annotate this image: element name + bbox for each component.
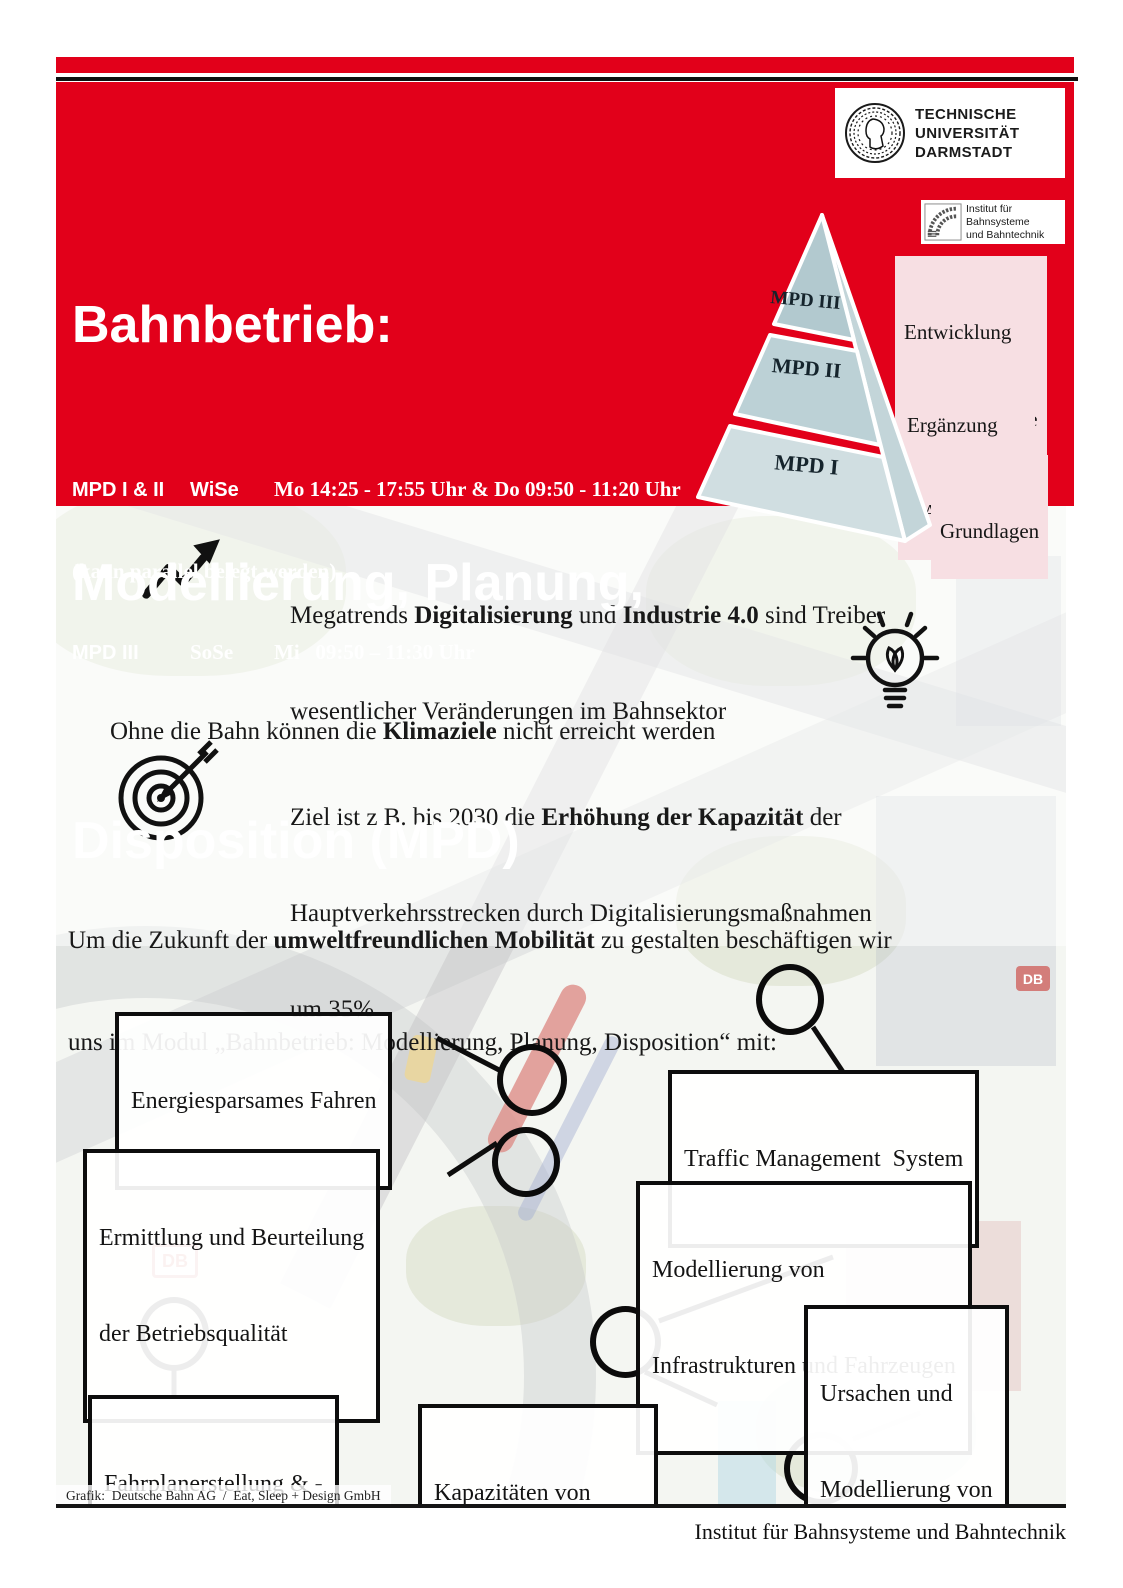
tu-darmstadt-logo: TECHNISCHE UNIVERSITÄT DARMSTADT (835, 88, 1065, 178)
photo-label-kapazitaeten: Kapazitäten von Schieneninfrastruktur (418, 1404, 658, 1508)
label-line: Ursachen und (820, 1378, 993, 1410)
label-line: Traffic Management System (684, 1143, 963, 1175)
annotation-line: Grundlagen (940, 517, 1039, 546)
top-black-rule (56, 77, 1078, 81)
label-line: Ermittlung und Beurteilung (99, 1222, 364, 1254)
pyramid-tier-middle (735, 335, 880, 445)
module-name: MPD III (72, 640, 190, 667)
institute-line: und Bahntechnik (966, 229, 1044, 242)
institute-line: Institut für (966, 203, 1044, 216)
focus-circle-train (497, 1044, 567, 1116)
schedule-row-1: MPD I & IIWiSeMo 14:25 - 17:55 Uhr & Do … (72, 476, 681, 504)
footer-institute-name: Institut für Bahnsysteme und Bahntechnik (695, 1519, 1067, 1545)
institute-logo-text: Institut für Bahnsysteme und Bahntechnik (966, 203, 1044, 242)
athena-emblem-icon (843, 101, 907, 165)
label-line: Energiesparsames Fahren (131, 1085, 376, 1117)
pyramid-annotation-3: Grundlagen (931, 455, 1048, 579)
tu-line: DARMSTADT (915, 143, 1019, 162)
label-line: Kapazitäten von (434, 1477, 642, 1508)
poster-page: { "colors": { "brand_red": "#e2001a", "l… (0, 0, 1123, 1588)
institute-line: Bahnsysteme (966, 216, 1044, 229)
title-line-3: Disposition (MPD) (72, 798, 644, 884)
connector-traffic (813, 1027, 843, 1072)
focus-circle-track (492, 1127, 560, 1197)
schedule-note: (kann parallel belegt werden) (72, 558, 681, 585)
focus-circle-traffic (756, 964, 824, 1035)
photo-label-ursachen: Ursachen und Modellierung von Verspätung (804, 1305, 1009, 1508)
connector-energiesparsames (437, 1038, 503, 1072)
time-slot: Mi 09:50 – 11:30 Uhr (274, 640, 475, 664)
photo-label-ermittlung: Ermittlung und Beurteilung der Betriebsq… (83, 1149, 380, 1423)
mpd-pyramid-diagram: MPD III MPD II MPD I (680, 207, 945, 552)
title-line-1: Bahnbetrieb: (72, 282, 644, 368)
graphic-credit: Grafik: Deutsche Bahn AG / Eat, Sleep + … (56, 1485, 391, 1507)
label-line: Modellierung von (820, 1474, 993, 1506)
time-slot: Mo 14:25 - 17:55 Uhr & Do 09:50 - 11:20 … (274, 477, 681, 501)
schedule-block: MPD I & IIWiSeMo 14:25 - 17:55 Uhr & Do … (72, 422, 681, 694)
module-name: MPD I & II (72, 477, 190, 504)
connector-ermittlung (448, 1143, 497, 1175)
schedule-row-2: MPD IIISoSeMi 09:50 – 11:30 Uhr (72, 639, 681, 667)
tu-logo-text: TECHNISCHE UNIVERSITÄT DARMSTADT (915, 105, 1019, 162)
tu-line: UNIVERSITÄT (915, 124, 1019, 143)
top-red-bar (56, 57, 1074, 73)
tu-line: TECHNISCHE (915, 105, 1019, 124)
term-name: SoSe (190, 639, 274, 666)
term-name: WiSe (190, 477, 274, 504)
label-line: Modellierung von (652, 1254, 956, 1286)
label-line: der Betriebsqualität (99, 1318, 364, 1350)
